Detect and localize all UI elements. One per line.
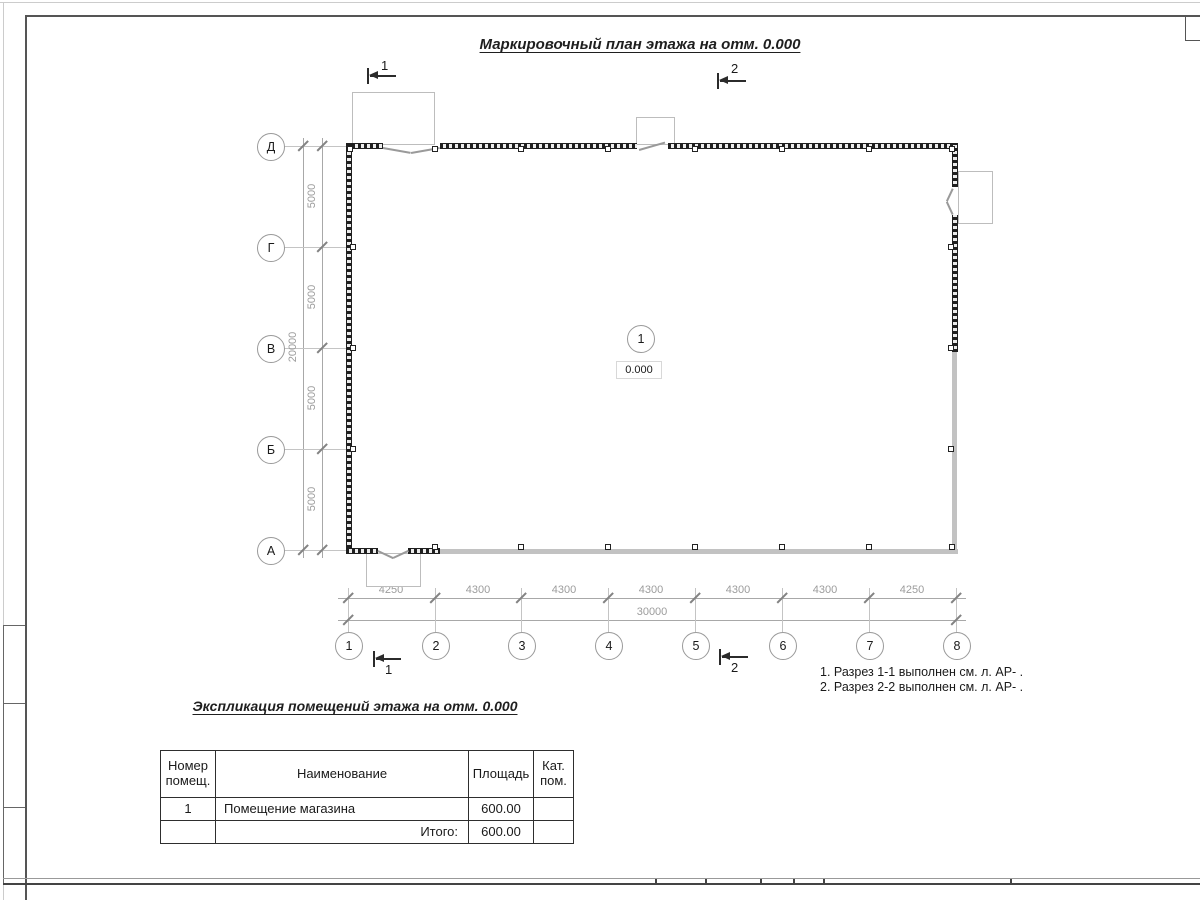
- column-marker: [350, 446, 356, 452]
- axis-bubble-row: Д: [257, 133, 285, 161]
- axis-bubble-row: Б: [257, 436, 285, 464]
- axis-bubble-col: 8: [943, 632, 971, 660]
- column-marker: [779, 544, 785, 550]
- axis-bubble-row: Г: [257, 234, 285, 262]
- column-marker: [605, 146, 611, 152]
- dim-text-total: 20000: [287, 317, 299, 377]
- axis-bubble-col: 2: [422, 632, 450, 660]
- column-marker: [432, 146, 438, 152]
- wall-right-glazed: [952, 352, 957, 553]
- dim-text: 4300: [708, 584, 768, 596]
- table-total-row: Итого: 600.00: [161, 821, 574, 844]
- axis-bubble-col: 1: [335, 632, 363, 660]
- section-marker-label: 1: [381, 58, 388, 73]
- dim-text: 5000: [306, 166, 318, 226]
- axis-bubble-col: 7: [856, 632, 884, 660]
- filing-box-line: [3, 703, 25, 704]
- column-marker: [347, 146, 353, 152]
- frame-border-top: [25, 15, 1200, 17]
- column-marker: [948, 244, 954, 250]
- column-marker: [866, 146, 872, 152]
- axis-bubble-col: 4: [595, 632, 623, 660]
- filing-box-line: [3, 807, 25, 808]
- column-marker: [518, 146, 524, 152]
- frame-border-left: [25, 15, 27, 900]
- axis-bubble-row: А: [257, 537, 285, 565]
- axis-extension-line: [283, 146, 347, 147]
- cell-room-category: [534, 798, 574, 821]
- titleblock-tick: [760, 879, 762, 883]
- axis-bubble-col: 3: [508, 632, 536, 660]
- dim-text-total: 30000: [622, 606, 682, 618]
- filing-box-edge: [3, 625, 4, 883]
- cell-empty: [161, 821, 216, 844]
- column-marker: [866, 544, 872, 550]
- dim-text: 4250: [882, 584, 942, 596]
- dim-text: 4300: [534, 584, 594, 596]
- note-line: 1. Разрез 1-1 выполнен см. л. АР- .: [820, 665, 1023, 679]
- section-arrow-icon: [375, 654, 384, 662]
- dim-text: 4300: [621, 584, 681, 596]
- vestibule-outline: [636, 117, 675, 145]
- note-line: 2. Разрез 2-2 выполнен см. л. АР- .: [820, 680, 1023, 694]
- dim-text: 5000: [306, 267, 318, 327]
- cell-empty: [534, 821, 574, 844]
- frame-corner-box-edge: [1185, 16, 1186, 41]
- titleblock-tick: [823, 879, 825, 883]
- cell-room-name: Помещение магазина: [216, 798, 469, 821]
- door-leaf: [946, 201, 953, 214]
- column-marker: [692, 544, 698, 550]
- cell-total-label: Итого:: [216, 821, 469, 844]
- frame-corner-box-bottom: [1185, 40, 1200, 41]
- section-marker-label: 2: [731, 61, 738, 76]
- explication-table: Номер помещ. Наименование Площадь Кат. п…: [160, 750, 574, 844]
- door-leaf: [383, 147, 411, 153]
- filing-box-line: [3, 625, 25, 626]
- titleblock-tick: [1010, 879, 1012, 883]
- cell-room-number: 1: [161, 798, 216, 821]
- header-area: Площадь: [469, 751, 534, 798]
- elevation-label: 0.000: [616, 361, 662, 379]
- column-marker: [518, 544, 524, 550]
- table-row: 1 Помещение магазина 600.00: [161, 798, 574, 821]
- axis-extension-line: [283, 550, 347, 551]
- vestibule-outline: [352, 92, 435, 145]
- titleblock-top-thin: [3, 878, 1200, 879]
- door-leaf: [946, 188, 953, 201]
- column-marker: [949, 544, 955, 550]
- column-marker: [432, 544, 438, 550]
- axis-bubble-col: 5: [682, 632, 710, 660]
- cell-total-area: 600.00: [469, 821, 534, 844]
- dim-text: 5000: [306, 368, 318, 428]
- axis-bubble-col: 6: [769, 632, 797, 660]
- dim-text: 4300: [448, 584, 508, 596]
- wall-right: [952, 215, 958, 352]
- dim-text: 4300: [795, 584, 855, 596]
- dim-line-bottom-outer: [338, 620, 966, 621]
- column-marker: [350, 244, 356, 250]
- table-header-row: Номер помещ. Наименование Площадь Кат. п…: [161, 751, 574, 798]
- header-category: Кат. пом.: [534, 751, 574, 798]
- section-arrow-icon: [721, 652, 730, 660]
- column-marker: [779, 146, 785, 152]
- drawing-sheet: Маркировочный план этажа на отм. 0.000 4…: [0, 0, 1200, 900]
- drawing-title: Маркировочный план этажа на отм. 0.000: [340, 36, 940, 53]
- page-edge-top: [0, 2, 1200, 3]
- section-arrow-icon: [719, 76, 728, 84]
- titleblock-top-thick: [3, 883, 1200, 885]
- column-marker: [605, 544, 611, 550]
- section-marker-label: 1: [385, 662, 392, 677]
- column-marker: [948, 446, 954, 452]
- wall-top: [668, 143, 958, 149]
- column-marker: [949, 146, 955, 152]
- vestibule-outline: [958, 171, 993, 224]
- column-marker: [948, 345, 954, 351]
- dim-text: 5000: [306, 469, 318, 529]
- column-marker: [350, 345, 356, 351]
- titleblock-tick: [793, 879, 795, 883]
- titleblock-tick: [655, 879, 657, 883]
- axis-extension-line: [283, 247, 347, 248]
- axis-bubble-row: В: [257, 335, 285, 363]
- header-room-number: Номер помещ.: [161, 751, 216, 798]
- titleblock-tick: [705, 879, 707, 883]
- room-number-bubble: 1: [627, 325, 655, 353]
- wall-bottom: [346, 548, 378, 554]
- column-marker: [692, 146, 698, 152]
- explication-title: Экспликация помещений этажа на отм. 0.00…: [160, 698, 550, 714]
- section-arrow-icon: [369, 71, 378, 79]
- section-marker-label: 2: [731, 660, 738, 675]
- header-name: Наименование: [216, 751, 469, 798]
- cell-room-area: 600.00: [469, 798, 534, 821]
- axis-extension-line: [283, 449, 347, 450]
